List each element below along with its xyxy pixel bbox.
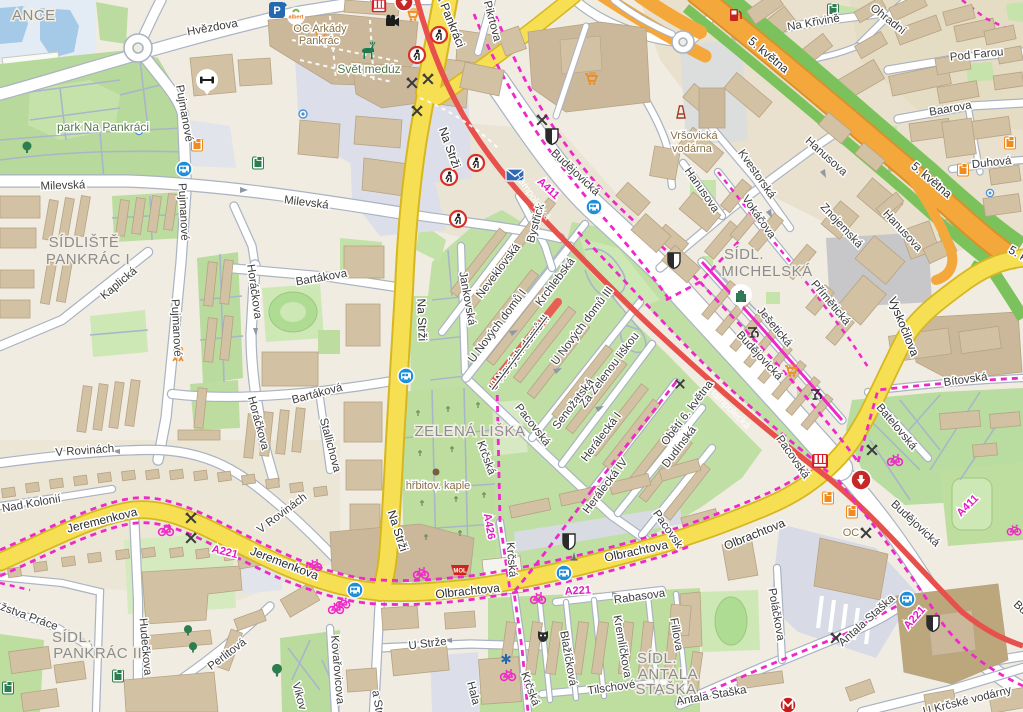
svg-text:A221: A221 (564, 584, 591, 597)
svg-text:Milevská: Milevská (40, 179, 86, 193)
svg-text:PANKRÁC III: PANKRÁC III (53, 645, 147, 662)
svg-text:Vršovická: Vršovická (670, 130, 718, 142)
svg-text:ZELENÁ LIŠKA: ZELENÁ LIŠKA (414, 423, 525, 440)
svg-text:Pankrác: Pankrác (299, 35, 340, 47)
svg-text:MICHELSKÁ: MICHELSKÁ (721, 263, 812, 280)
svg-text:SÍDL.: SÍDL. (637, 650, 677, 667)
svg-text:park Na Pankráci: park Na Pankráci (57, 120, 149, 134)
svg-text:Na Strži: Na Strži (414, 298, 429, 341)
svg-text:vodárna: vodárna (672, 143, 713, 155)
svg-text:OC: OC (843, 527, 860, 539)
svg-text:ANCE: ANCE (12, 7, 56, 24)
svg-text:hřbitov. kaple: hřbitov. kaple (406, 480, 471, 492)
svg-text:PANKRÁC I: PANKRÁC I (46, 251, 130, 268)
svg-text:SÍDL.: SÍDL. (52, 629, 92, 646)
svg-text:SÍDLIŠTĚ: SÍDLIŠTĚ (49, 234, 120, 251)
svg-text:SÍDL.: SÍDL. (724, 246, 764, 263)
svg-text:OC Arkády: OC Arkády (293, 23, 347, 35)
svg-text:Svět medúz: Svět medúz (337, 62, 400, 76)
